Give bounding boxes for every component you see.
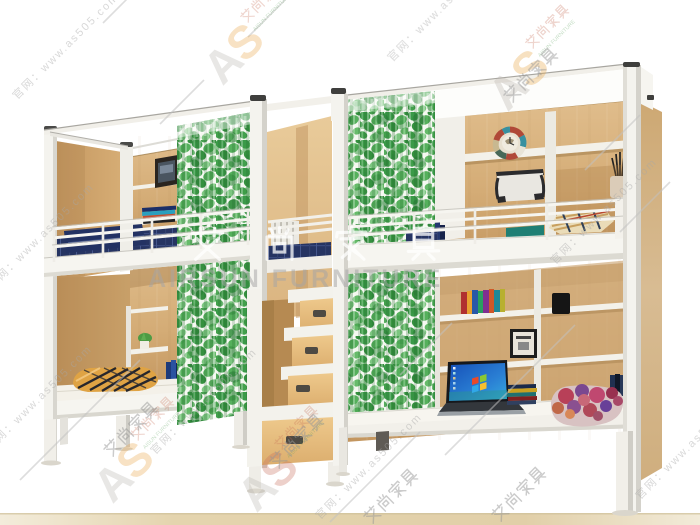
svg-text:AIRSUN FURNITURE: AIRSUN FURNITURE	[148, 265, 443, 293]
